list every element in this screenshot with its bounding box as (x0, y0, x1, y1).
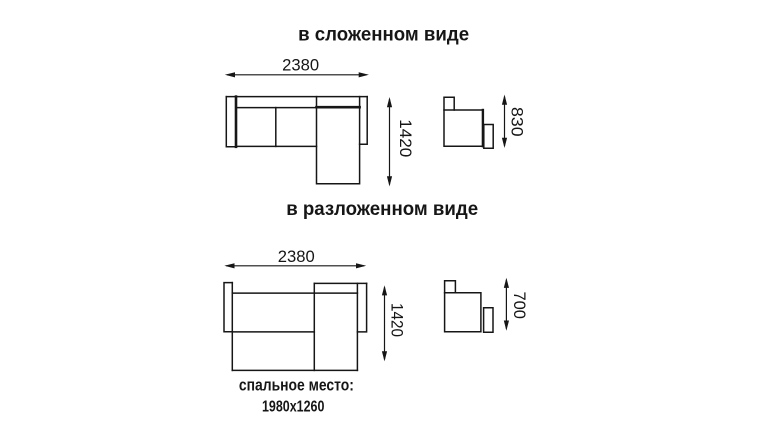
svg-text:1420: 1420 (388, 303, 407, 337)
svg-text:2380: 2380 (278, 247, 315, 266)
svg-text:2380: 2380 (282, 55, 319, 74)
svg-text:1980x1260: 1980x1260 (262, 399, 325, 416)
svg-text:в сложенном виде: в сложенном виде (298, 24, 469, 45)
svg-text:700: 700 (510, 291, 529, 319)
svg-text:1420: 1420 (396, 119, 415, 157)
svg-text:830: 830 (507, 107, 526, 137)
svg-text:спальное место:: спальное место: (239, 377, 354, 395)
svg-text:в разложенном виде: в разложенном виде (286, 199, 478, 220)
